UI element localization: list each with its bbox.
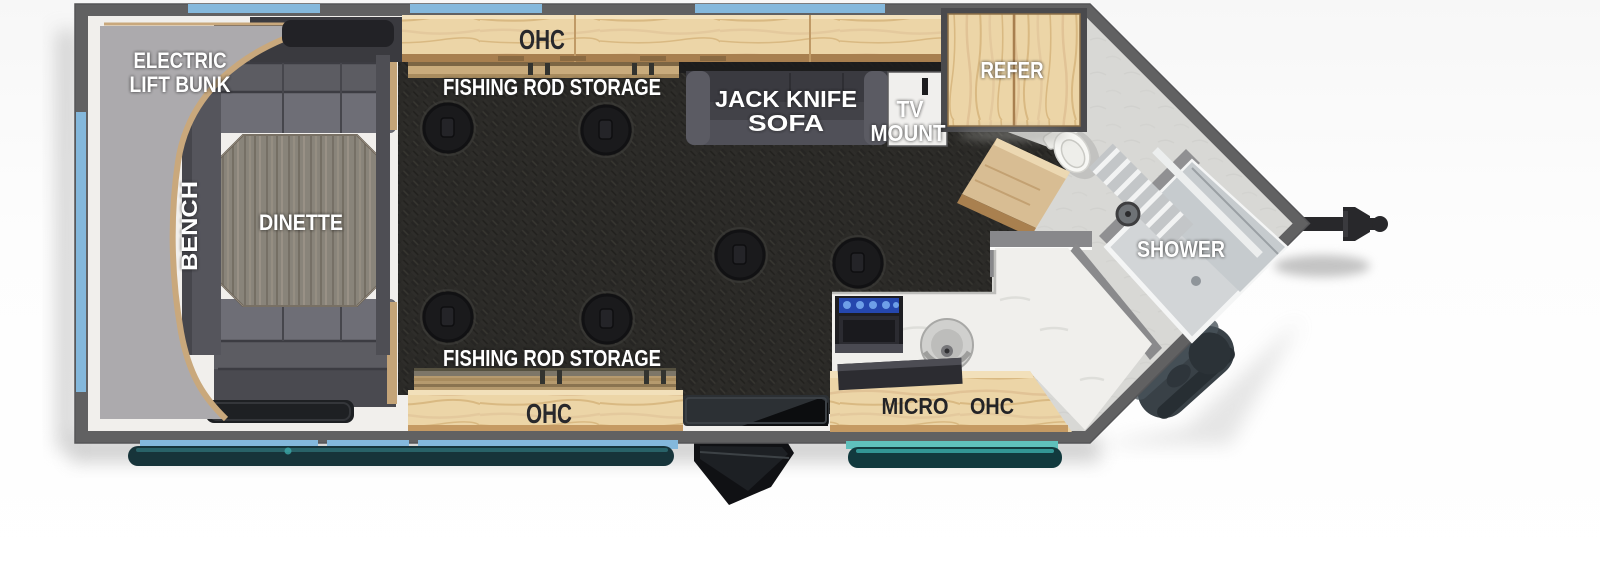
svg-text:MOUNT: MOUNT	[871, 120, 946, 146]
svg-text:TV: TV	[897, 96, 925, 122]
svg-text:FISHING ROD STORAGE: FISHING ROD STORAGE	[443, 74, 661, 100]
svg-text:REFER: REFER	[981, 57, 1044, 83]
svg-text:OHC: OHC	[519, 24, 565, 55]
svg-text:FISHING ROD STORAGE: FISHING ROD STORAGE	[443, 345, 661, 371]
svg-text:SHOWER: SHOWER	[1137, 236, 1225, 262]
svg-text:JACK KNIFE: JACK KNIFE	[715, 86, 857, 112]
svg-text:LIFT BUNK: LIFT BUNK	[130, 72, 231, 97]
svg-text:OHC: OHC	[970, 393, 1014, 419]
svg-text:SOFA: SOFA	[748, 110, 824, 136]
svg-text:MICRO: MICRO	[882, 393, 949, 419]
svg-text:ELECTRIC: ELECTRIC	[134, 48, 227, 73]
svg-text:DINETTE: DINETTE	[259, 210, 343, 235]
svg-text:BENCH: BENCH	[177, 181, 202, 271]
svg-text:OHC: OHC	[526, 398, 572, 429]
